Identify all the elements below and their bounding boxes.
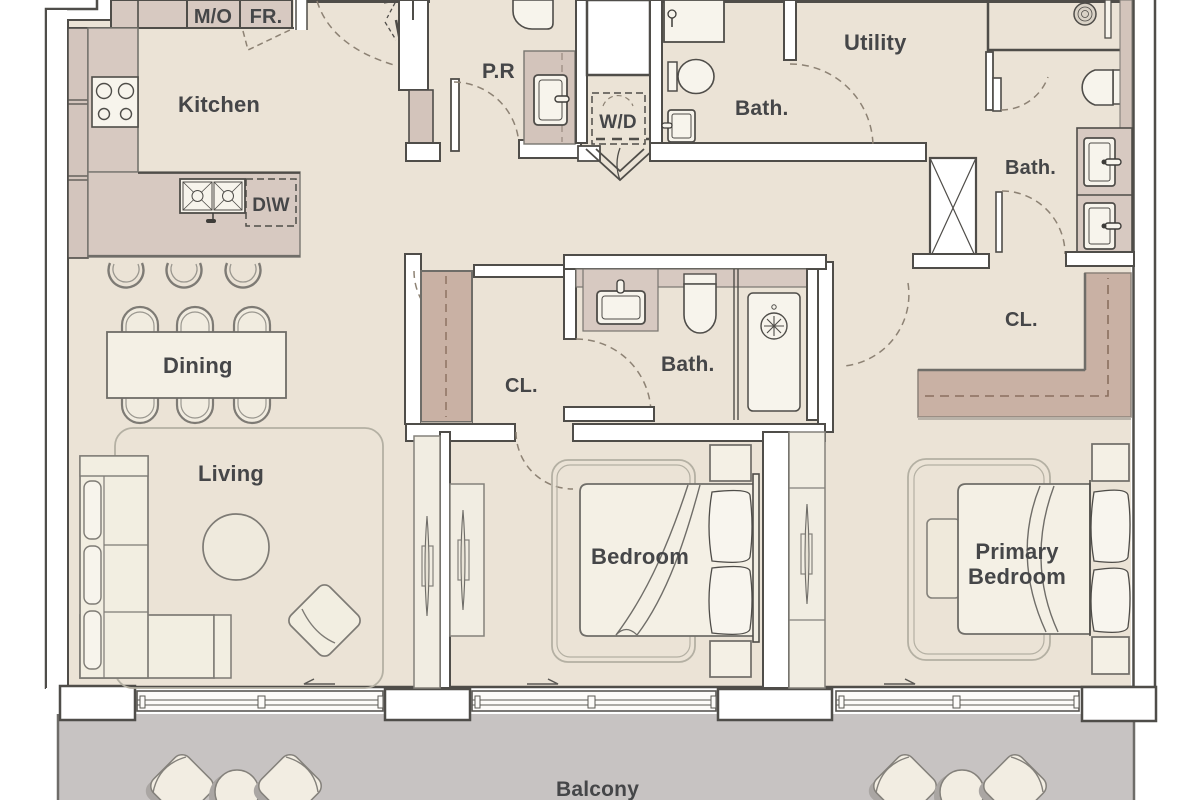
svg-text:FR.: FR. — [250, 6, 283, 28]
svg-text:Balcony: Balcony — [556, 778, 639, 800]
svg-text:D\W: D\W — [252, 195, 290, 216]
svg-text:CL.: CL. — [505, 375, 538, 397]
svg-text:Bedroom: Bedroom — [968, 564, 1066, 589]
svg-text:Bedroom: Bedroom — [591, 544, 689, 569]
svg-text:M/O: M/O — [194, 6, 232, 28]
svg-text:Primary: Primary — [975, 539, 1059, 564]
svg-text:W/D: W/D — [599, 112, 637, 133]
svg-text:P.R: P.R — [482, 60, 515, 83]
svg-text:Living: Living — [198, 461, 264, 486]
svg-text:Dining: Dining — [163, 353, 233, 378]
svg-text:Utility: Utility — [844, 30, 907, 55]
svg-text:CL.: CL. — [1005, 309, 1038, 331]
svg-text:Bath.: Bath. — [1005, 157, 1056, 179]
svg-text:Bath.: Bath. — [735, 97, 789, 120]
svg-text:Bath.: Bath. — [661, 353, 715, 376]
svg-text:Kitchen: Kitchen — [178, 92, 260, 117]
